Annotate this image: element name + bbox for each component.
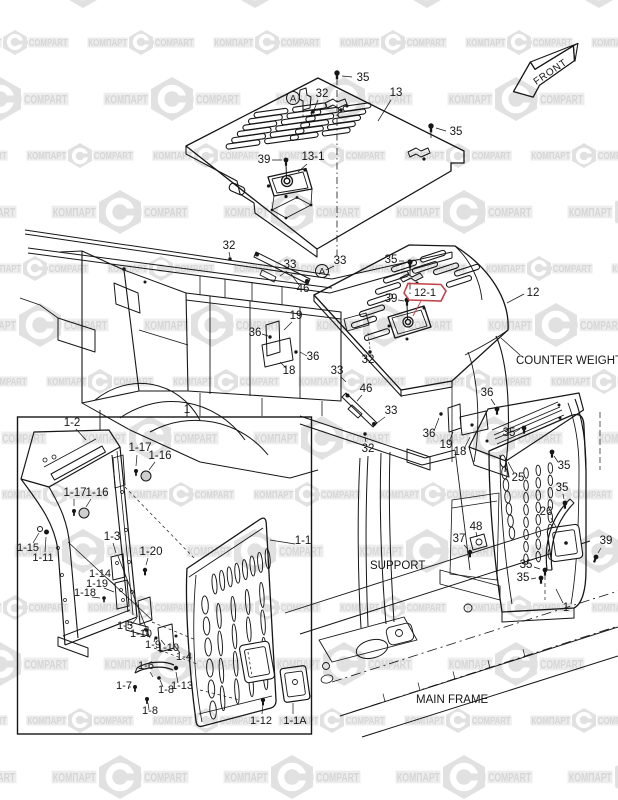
svg-text:36: 36 <box>249 327 262 339</box>
svg-text:COMPART: COMPART <box>346 151 385 162</box>
svg-text:КОМПАРТ: КОМПАРТ <box>145 319 188 333</box>
svg-text:КОМПАРТ: КОМПАРТ <box>27 151 66 162</box>
svg-text:COMPART: COMPART <box>29 38 68 49</box>
svg-text:КОМПАРТ: КОМПАРТ <box>340 38 379 49</box>
svg-text:COMPART: COMPART <box>0 206 16 220</box>
svg-text:35: 35 <box>357 72 370 84</box>
svg-text:КОМПАРТ: КОМПАРТ <box>0 264 21 275</box>
svg-text:1-17: 1-17 <box>63 487 86 499</box>
svg-text:COMPART: COMPART <box>0 377 27 388</box>
svg-text:COMPART: COMPART <box>174 432 217 446</box>
svg-text:1-16: 1-16 <box>148 450 171 462</box>
svg-text:13-1: 13-1 <box>301 151 324 163</box>
svg-text:COMPART: COMPART <box>472 716 511 727</box>
svg-text:12-1: 12-1 <box>414 287 436 299</box>
svg-text:35: 35 <box>558 460 571 472</box>
svg-text:39: 39 <box>600 535 613 547</box>
svg-text:1-2: 1-2 <box>64 417 81 429</box>
svg-text:КОМПАРТ: КОМПАРТ <box>486 264 525 275</box>
svg-text:COMPART: COMPART <box>488 206 531 220</box>
svg-text:1-13: 1-13 <box>171 680 193 692</box>
svg-text:COMPART: COMPART <box>281 38 320 49</box>
svg-text:COMPART: COMPART <box>155 38 194 49</box>
svg-text:КОМПАРТ: КОМПАРТ <box>397 771 440 785</box>
svg-text:КОМПАРТ: КОМПАРТ <box>592 38 618 49</box>
svg-text:КОМПАРТ: КОМПАРТ <box>397 206 440 220</box>
svg-text:КОМПАРТ: КОМПАРТ <box>299 377 338 388</box>
svg-text:COMPART: COMPART <box>598 151 618 162</box>
svg-text:35: 35 <box>556 482 569 494</box>
svg-text:1-6: 1-6 <box>138 660 154 672</box>
svg-text:КОМПАРТ: КОМПАРТ <box>128 490 167 501</box>
svg-text:35: 35 <box>517 572 530 584</box>
svg-text:COMPART: COMPART <box>580 319 618 333</box>
svg-text:КОМПАРТ: КОМПАРТ <box>0 603 1 614</box>
svg-text:COMPART: COMPART <box>94 151 133 162</box>
svg-text:КОМПАРТ: КОМПАРТ <box>449 93 492 107</box>
svg-text:КОМПАРТ: КОМПАРТ <box>188 545 231 559</box>
svg-text:COMPART: COMPART <box>472 151 511 162</box>
svg-text:COMPART: COMPART <box>0 716 7 727</box>
svg-text:КОМПАРТ: КОМПАРТ <box>569 771 612 785</box>
svg-text:COMPART: COMPART <box>220 151 259 162</box>
svg-text:19: 19 <box>440 439 453 451</box>
svg-text:COMPART: COMPART <box>540 658 583 672</box>
svg-text:КОМПАРТ: КОМПАРТ <box>489 319 532 333</box>
svg-text:COMPART: COMPART <box>0 151 7 162</box>
svg-text:12: 12 <box>527 287 540 299</box>
svg-text:35: 35 <box>503 427 516 439</box>
svg-text:КОМПАРТ: КОМПАРТ <box>53 206 96 220</box>
svg-text:COMPART: COMPART <box>321 490 360 501</box>
svg-text:КОМПАРТ: КОМПАРТ <box>599 432 618 446</box>
svg-text:COMPART: COMPART <box>2 432 45 446</box>
svg-text:32: 32 <box>223 240 236 252</box>
svg-text:КОМПАРТ: КОМПАРТ <box>531 716 570 727</box>
svg-text:COMPART: COMPART <box>24 658 67 672</box>
svg-text:COMPART: COMPART <box>553 264 592 275</box>
svg-text:48: 48 <box>470 521 483 533</box>
svg-text:COMPART: COMPART <box>488 771 531 785</box>
svg-text:33: 33 <box>331 365 344 377</box>
svg-text:36: 36 <box>307 351 320 363</box>
svg-text:COMPART: COMPART <box>451 545 494 559</box>
svg-text:35: 35 <box>450 126 463 138</box>
svg-text:COMPART: COMPART <box>144 771 187 785</box>
svg-text:КОМПАРТ: КОМПАРТ <box>531 151 570 162</box>
svg-text:33: 33 <box>284 259 297 271</box>
svg-text:1: 1 <box>563 602 569 614</box>
svg-text:COMPART: COMPART <box>196 93 239 107</box>
svg-text:46: 46 <box>360 383 373 395</box>
svg-text:COMPART: COMPART <box>240 377 279 388</box>
svg-text:1-8: 1-8 <box>142 705 158 717</box>
svg-text:COMPART: COMPART <box>407 38 446 49</box>
svg-text:1-3: 1-3 <box>104 531 121 543</box>
svg-text:36: 36 <box>423 428 436 440</box>
svg-text:КОМПАРТ: КОМПАРТ <box>88 38 127 49</box>
svg-text:1-1: 1-1 <box>295 535 312 547</box>
svg-text:35: 35 <box>385 254 398 266</box>
svg-text:КОМПАРТ: КОМПАРТ <box>317 319 360 333</box>
svg-text:COMPART: COMPART <box>540 93 583 107</box>
svg-text:КОМПАРТ: КОМПАРТ <box>225 771 268 785</box>
svg-text:COUNTER WEIGHT: COUNTER WEIGHT <box>516 355 618 367</box>
svg-text:КОМПАРТ: КОМПАРТ <box>53 771 96 785</box>
svg-text:COMPART: COMPART <box>64 319 107 333</box>
svg-text:COMPART: COMPART <box>492 377 531 388</box>
svg-text:КОМПАРТ: КОМПАРТ <box>105 93 148 107</box>
svg-text:COMPART: COMPART <box>346 716 385 727</box>
svg-text:32: 32 <box>316 88 329 100</box>
svg-text:26: 26 <box>540 506 553 518</box>
svg-text:КОМПАРТ: КОМПАРТ <box>47 377 86 388</box>
svg-text:COMPART: COMPART <box>408 319 451 333</box>
svg-text:1-7: 1-7 <box>116 680 132 692</box>
svg-text:КОМПАРТ: КОМПАРТ <box>83 432 126 446</box>
svg-text:КОМПАРТ: КОМПАРТ <box>277 658 320 672</box>
svg-text:39: 39 <box>258 154 271 166</box>
svg-text:COMPART: COMPART <box>144 206 187 220</box>
svg-text:КОМПАРТ: КОМПАРТ <box>569 206 612 220</box>
svg-text:1-1A: 1-1A <box>283 715 307 727</box>
svg-text:13: 13 <box>390 87 403 99</box>
svg-text:A: A <box>290 94 297 105</box>
svg-text:КОМПАРТ: КОМПАРТ <box>27 716 66 727</box>
svg-text:КОМПАРТ: КОМПАРТ <box>255 432 298 446</box>
svg-text:COMPART: COMPART <box>94 716 133 727</box>
svg-text:37: 37 <box>453 533 466 545</box>
svg-text:A: A <box>319 267 326 278</box>
svg-text:1-12: 1-12 <box>250 715 272 727</box>
svg-text:1-20: 1-20 <box>139 546 162 558</box>
svg-text:КОМПАРТ: КОМПАРТ <box>466 38 505 49</box>
svg-text:33: 33 <box>385 405 398 417</box>
svg-text:КОМПАРТ: КОМПАРТ <box>0 38 1 49</box>
svg-text:1-16: 1-16 <box>85 487 108 499</box>
svg-text:COMPART: COMPART <box>368 658 411 672</box>
svg-text:COMPART: COMPART <box>316 771 359 785</box>
svg-text:КОМПАРТ: КОМПАРТ <box>551 377 590 388</box>
svg-text:32: 32 <box>362 354 375 366</box>
svg-text:COMPART: COMPART <box>155 603 194 614</box>
svg-text:35: 35 <box>520 559 533 571</box>
svg-text:КОМПАРТ: КОМПАРТ <box>0 319 16 333</box>
svg-text:КОМПАРТ: КОМПАРТ <box>214 38 253 49</box>
svg-text:COMPART: COMPART <box>598 716 618 727</box>
svg-text:КОМПАРТ: КОМПАРТ <box>88 603 127 614</box>
svg-text:КОМПАРТ: КОМПАРТ <box>254 490 293 501</box>
svg-text:КОМПАРТ: КОМПАРТ <box>592 603 618 614</box>
svg-text:25: 25 <box>512 472 525 484</box>
svg-text:36: 36 <box>481 387 494 399</box>
svg-text:КОМПАРТ: КОМПАРТ <box>380 490 419 501</box>
svg-text:COMPART: COMPART <box>316 206 359 220</box>
svg-text:КОМПАРТ: КОМПАРТ <box>153 716 192 727</box>
svg-text:19: 19 <box>290 310 303 322</box>
svg-text:32: 32 <box>362 443 375 455</box>
svg-text:MAIN FRAME: MAIN FRAME <box>416 694 489 706</box>
svg-text:33: 33 <box>334 255 347 267</box>
svg-text:COMPART: COMPART <box>24 93 67 107</box>
svg-text:КОМПАРТ: КОМПАРТ <box>173 377 212 388</box>
svg-text:COMPART: COMPART <box>407 603 446 614</box>
svg-text:COMPART: COMPART <box>195 490 234 501</box>
svg-text:COMPART: COMPART <box>0 771 16 785</box>
svg-text:1-11: 1-11 <box>32 552 53 564</box>
svg-text:КОМПАРТ: КОМПАРТ <box>612 264 618 275</box>
